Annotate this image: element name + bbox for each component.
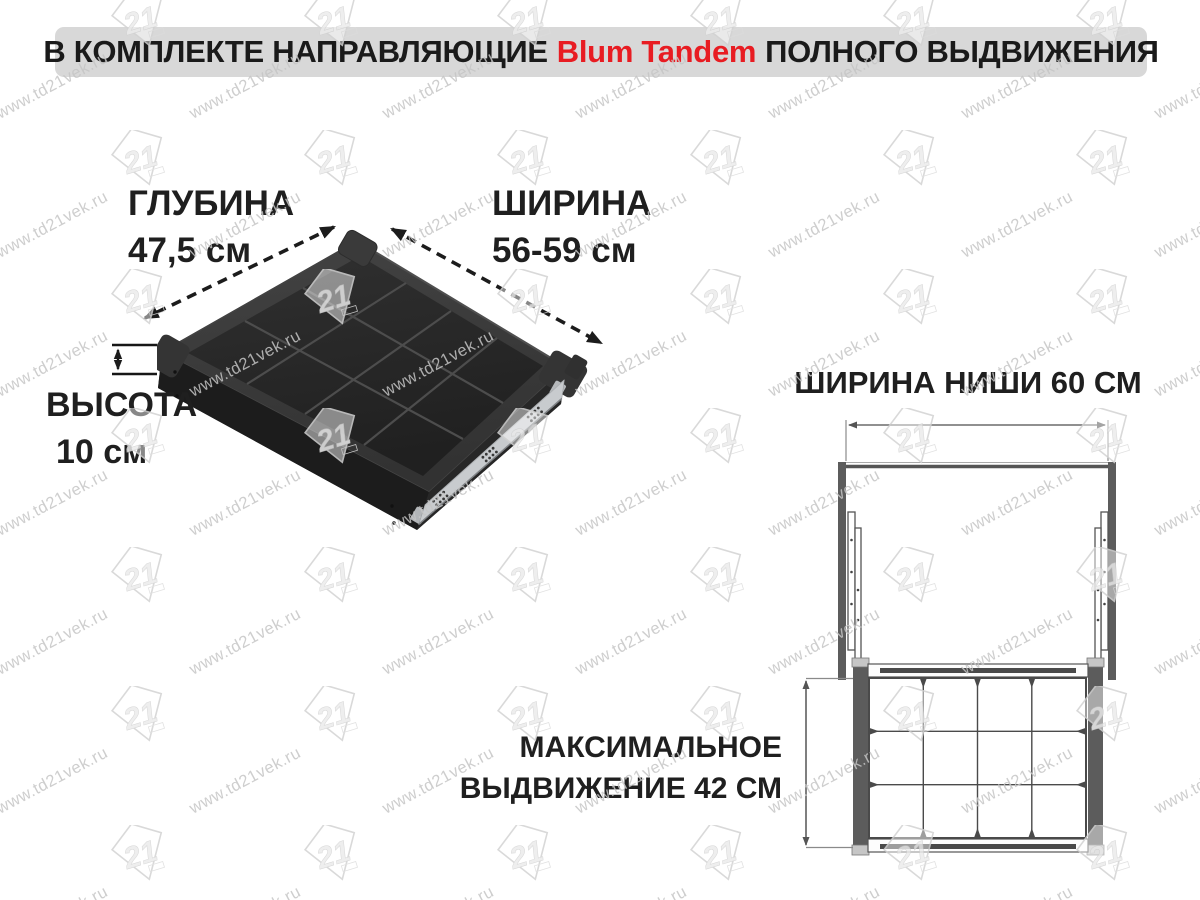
height-label: ВЫСОТА 10 см xyxy=(46,382,197,476)
banner: В КОМПЛЕКТЕ НАПРАВЛЯЮЩИЕ Blum Tandem ПОЛ… xyxy=(55,27,1147,77)
cabinet-left-panel xyxy=(838,462,846,680)
depth-label-title: ГЛУБИНА xyxy=(128,180,294,227)
extension-label: МАКСИМАЛЬНОЕ ВЫДВИЖЕНИЕ 42 СМ xyxy=(378,727,782,809)
extended-drawer xyxy=(852,658,1104,855)
page: В КОМПЛЕКТЕ НАПРАВЛЯЮЩИЕ Blum Tandem ПОЛ… xyxy=(0,0,1200,900)
banner-suffix: ПОЛНОГО ВЫДВИЖЕНИЯ xyxy=(765,34,1159,70)
width-label-title: ШИРИНА xyxy=(492,180,651,227)
niche-diagram xyxy=(806,420,1116,855)
niche-width-label: ШИРИНА НИШИ 60 СМ xyxy=(770,366,1166,400)
drawer-right-runner xyxy=(1088,662,1103,854)
banner-prefix: В КОМПЛЕКТЕ НАПРАВЛЯЮЩИЕ xyxy=(43,34,547,70)
depth-label-value: 47,5 см xyxy=(128,227,294,274)
rail-screws xyxy=(850,539,1106,622)
width-label-value: 56-59 см xyxy=(492,227,651,274)
height-label-value: 10 см xyxy=(56,429,197,476)
extension-label-line2: ВЫДВИЖЕНИЕ 42 СМ xyxy=(378,768,782,809)
height-label-title: ВЫСОТА xyxy=(46,382,197,429)
banner-brand: Blum Tandem xyxy=(557,34,756,70)
width-label: ШИРИНА 56-59 см xyxy=(492,180,651,274)
depth-label: ГЛУБИНА 47,5 см xyxy=(128,180,294,274)
extension-label-line1: МАКСИМАЛЬНОЕ xyxy=(378,727,782,768)
telescopic-rails xyxy=(848,512,1108,668)
cabinet-right-panel xyxy=(1108,462,1116,680)
drawer-left-runner xyxy=(853,662,868,854)
height-bracket xyxy=(112,345,157,374)
